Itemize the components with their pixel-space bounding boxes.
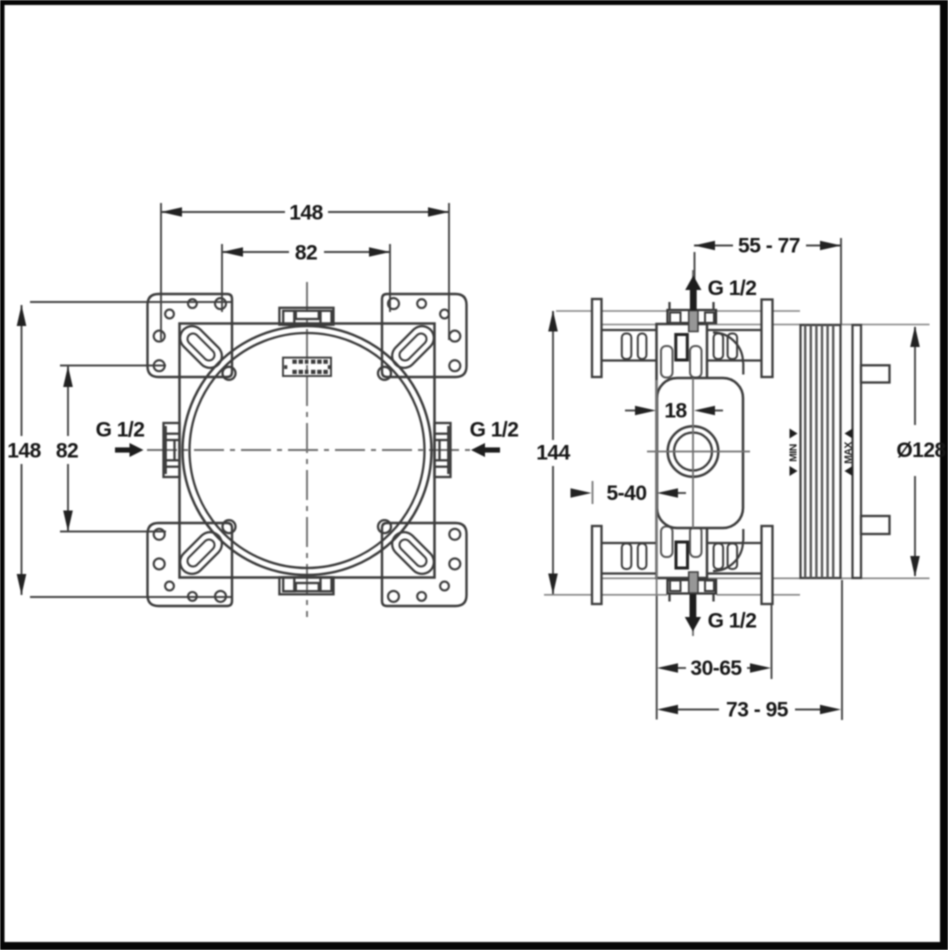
svg-text:30-65: 30-65 [690, 657, 742, 680]
svg-text:MAX: MAX [843, 442, 855, 464]
svg-text:73 - 95: 73 - 95 [726, 699, 789, 722]
svg-text:MIN: MIN [788, 444, 800, 462]
svg-text:82: 82 [56, 440, 78, 463]
svg-text:G 1/2: G 1/2 [96, 419, 145, 442]
svg-text:55 - 77: 55 - 77 [738, 235, 800, 258]
svg-text:G 1/2: G 1/2 [708, 610, 757, 633]
svg-text:82: 82 [295, 242, 317, 265]
svg-text:5-40: 5-40 [606, 482, 646, 505]
svg-text:18: 18 [664, 400, 687, 423]
svg-text:Ø128: Ø128 [896, 439, 946, 462]
svg-text:148: 148 [289, 202, 323, 225]
svg-text:148: 148 [7, 440, 41, 463]
svg-text:G 1/2: G 1/2 [708, 277, 757, 300]
svg-text:144: 144 [536, 442, 570, 465]
svg-text:G 1/2: G 1/2 [470, 419, 519, 442]
